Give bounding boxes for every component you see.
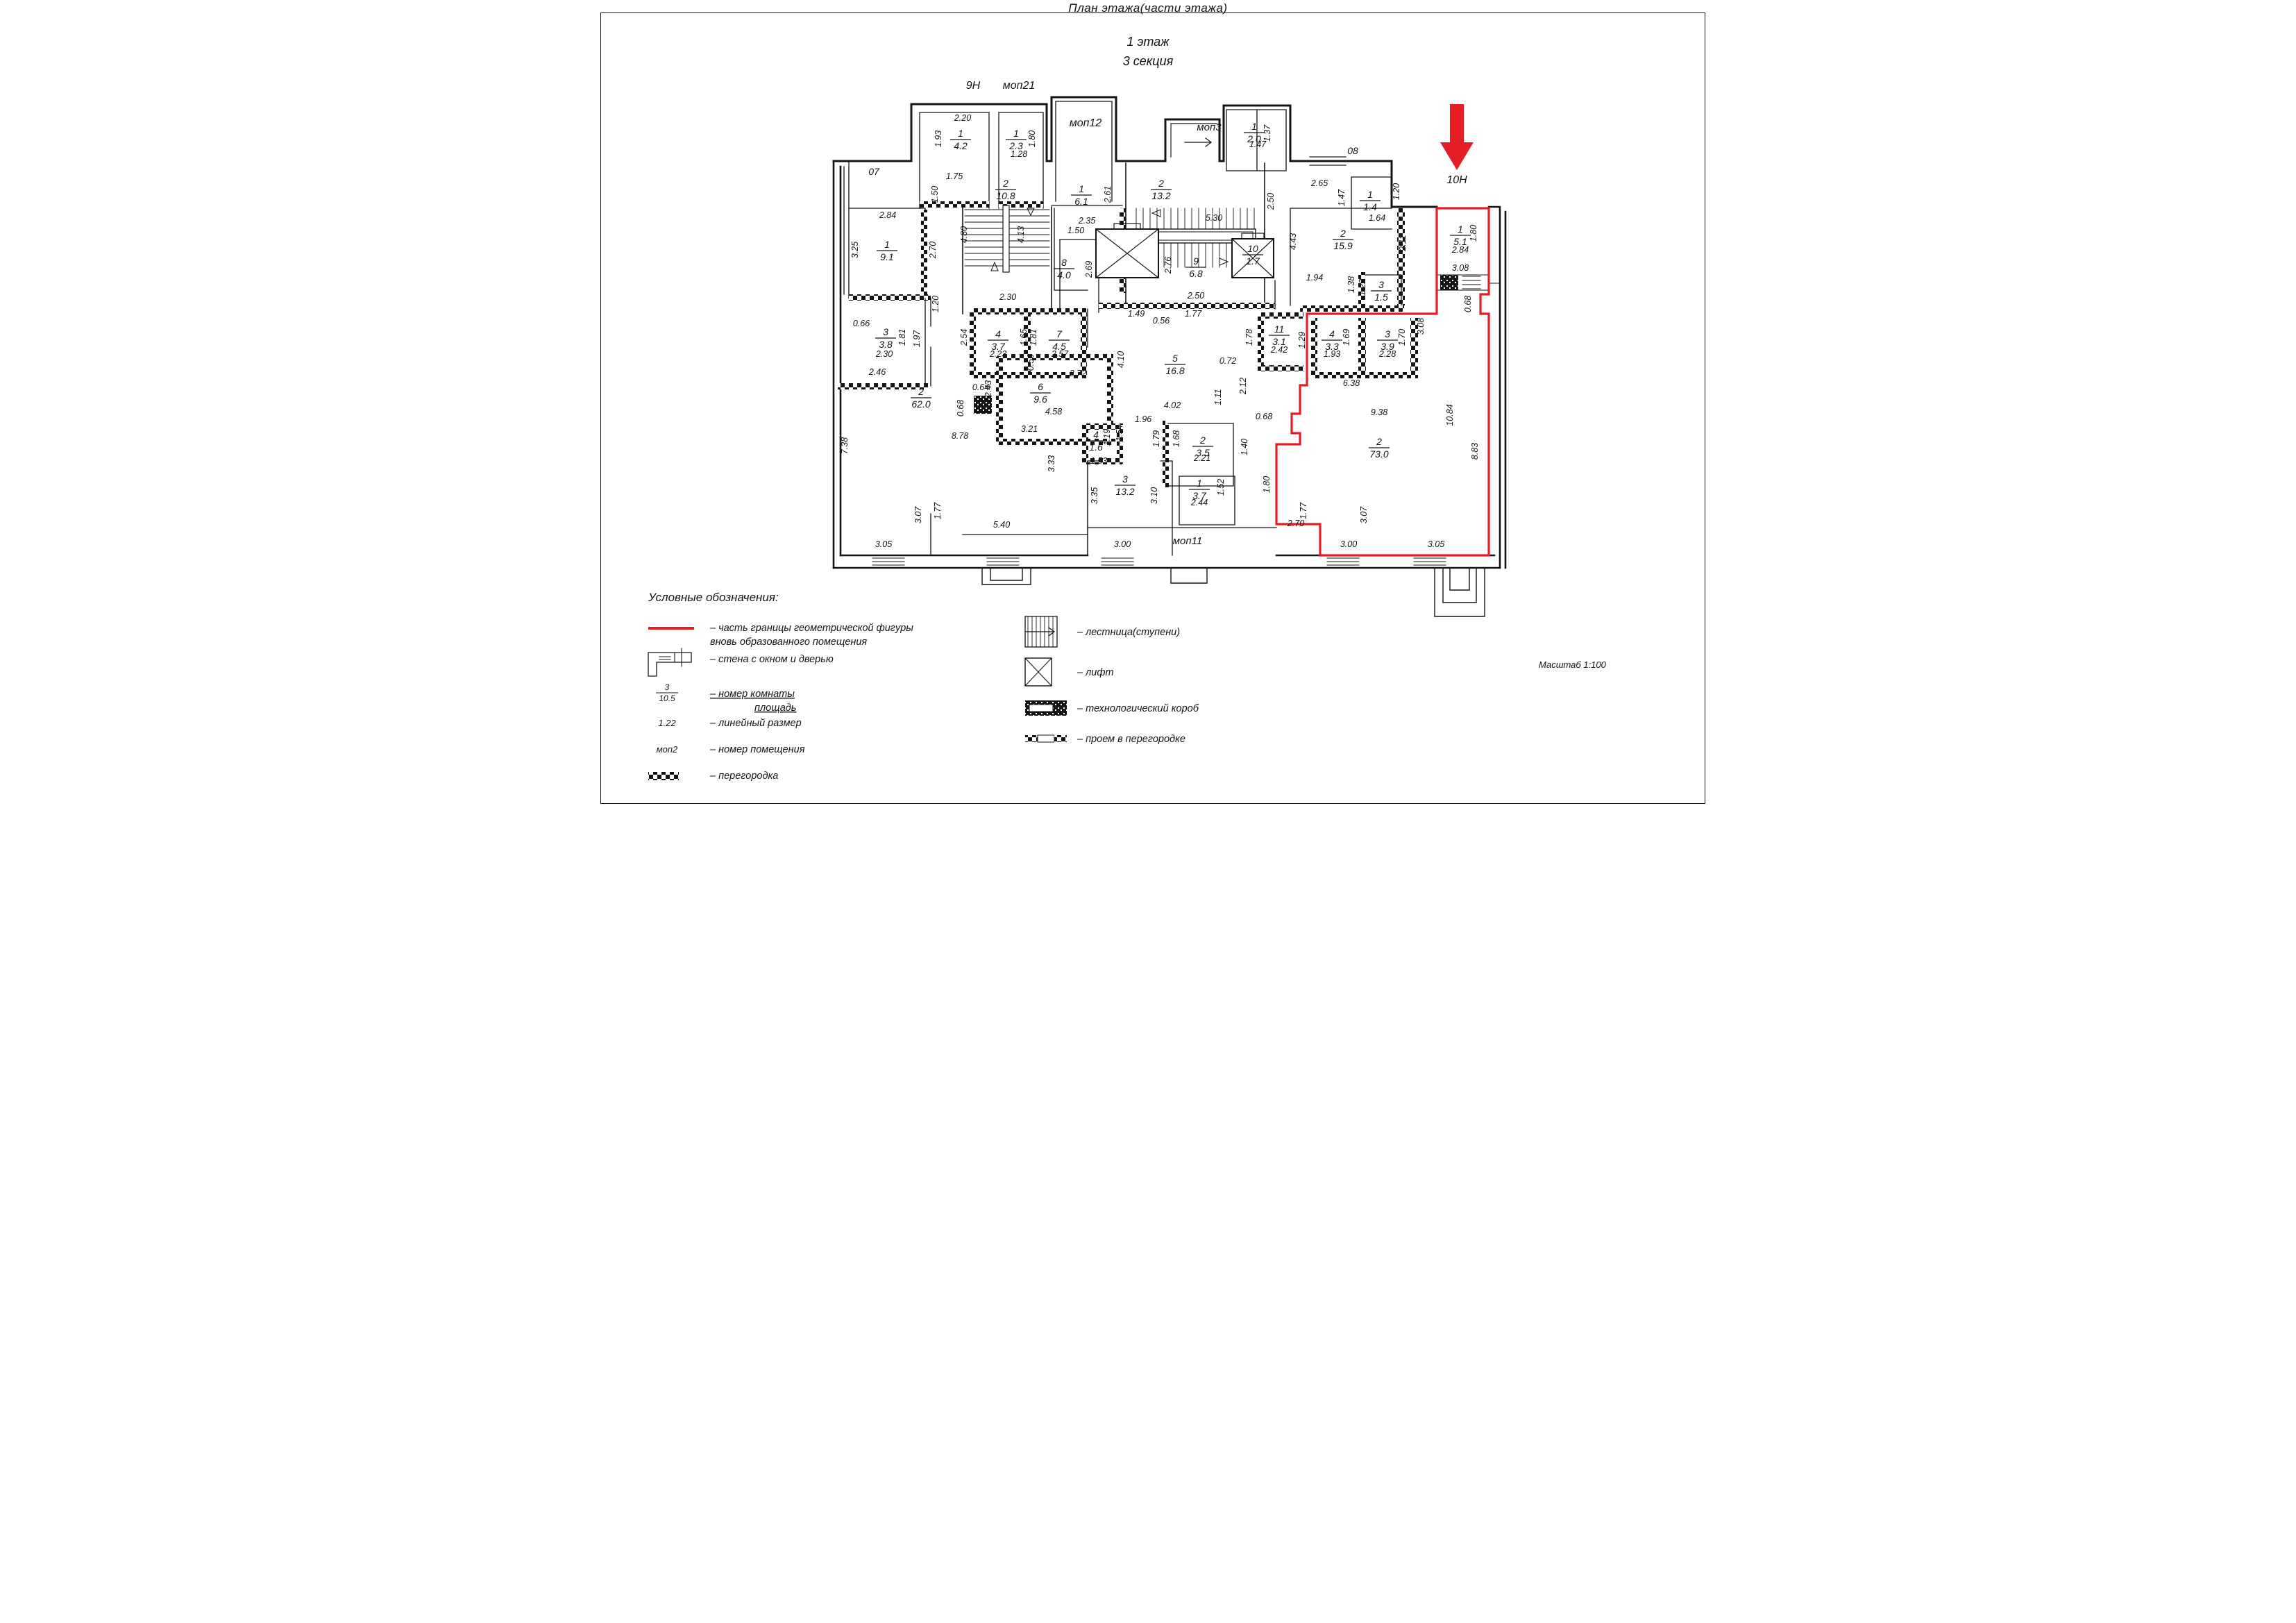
svg-text:3: 3 [1122, 473, 1128, 485]
svg-text:2.3: 2.3 [1008, 140, 1023, 151]
legend-text: – перегородка [709, 771, 778, 782]
room-label: 43.7 [988, 328, 1008, 352]
svg-text:1.5: 1.5 [1374, 292, 1388, 303]
svg-text:4.5: 4.5 [1052, 341, 1066, 352]
unit-id-label: 08 [1347, 145, 1358, 156]
dim-label: 2.12 [1238, 378, 1248, 395]
legend-symbol-checker [648, 772, 679, 780]
svg-text:16.8: 16.8 [1165, 365, 1184, 376]
svg-text:3.3: 3.3 [1325, 341, 1339, 352]
dim-label: 1.50 [1067, 226, 1084, 235]
unit-id-label: 10Н [1446, 174, 1467, 186]
svg-text:4.2: 4.2 [954, 140, 968, 151]
svg-text:4: 4 [1093, 429, 1099, 440]
svg-text:2: 2 [1002, 178, 1008, 189]
legend-text: – технологический короб [1077, 703, 1199, 714]
dim-label: 3.25 [850, 242, 860, 258]
dim-label: 4.02 [1164, 401, 1181, 410]
dim-label: 4.58 [1045, 407, 1062, 417]
legend: Условные обозначения:– часть границы гео… [648, 591, 1199, 782]
room-label: 43.3 [1322, 328, 1342, 352]
dim-label: 1.54 [1115, 425, 1124, 442]
unit-id-label: моп21 [1003, 80, 1035, 92]
dim-label: 1.97 [912, 330, 922, 347]
dim-label: 3.05 [1428, 539, 1444, 549]
legend-text: – номер помещения [709, 744, 805, 755]
svg-text:2: 2 [1199, 435, 1206, 446]
room-label: 516.8 [1165, 353, 1185, 376]
dim-label: 2.43 [984, 380, 993, 398]
legend-text: – часть границы геометрической фигуры [709, 623, 913, 634]
dim-label: 1.65 [1019, 329, 1029, 346]
svg-text:13.2: 13.2 [1151, 190, 1170, 201]
unit-id-label: моп3 [1197, 121, 1222, 133]
dim-label: 1.96 [1135, 414, 1151, 424]
dim-label: 2.46 [868, 367, 886, 377]
dim-label: 3.00 [1114, 539, 1131, 549]
dim-label: 3.07 [1359, 506, 1369, 523]
dim-label: 2.50 [1187, 291, 1204, 301]
dim-label: 4.43 [1288, 233, 1298, 250]
dim-label: 2.20 [954, 113, 971, 123]
dim-label: 0.72 [1219, 356, 1236, 366]
plan-drawing [834, 97, 1505, 616]
svg-text:9.6: 9.6 [1033, 394, 1047, 405]
room-label: 31.5 [1371, 279, 1392, 303]
dim-label: 1.68 [1172, 430, 1181, 447]
dim-label: 2.35 [1078, 216, 1095, 226]
svg-text:4.0: 4.0 [1057, 269, 1071, 280]
room-label: 84.0 [1054, 257, 1074, 280]
dim-label: 0.56 [1153, 316, 1170, 326]
svg-text:10.8: 10.8 [996, 190, 1015, 201]
dim-label: 6.38 [1343, 378, 1360, 388]
dim-label: 1.80 [1027, 131, 1037, 147]
dim-label: 2.61 [1103, 186, 1113, 203]
room-label: 14.2 [950, 128, 971, 151]
legend-symbol-lift [1025, 658, 1052, 686]
dim-label: 1.81 [1029, 329, 1038, 346]
svg-text:1: 1 [1079, 183, 1084, 194]
legend-text: – лестница(ступени) [1077, 627, 1180, 638]
svg-text:3.8: 3.8 [879, 339, 893, 350]
legend-text: вновь образованного помещения [710, 637, 867, 648]
svg-text:3.7: 3.7 [1192, 490, 1207, 501]
room-label: 69.6 [1030, 381, 1051, 405]
svg-text:3.5: 3.5 [1196, 447, 1210, 458]
svg-text:11: 11 [1274, 323, 1285, 335]
unit-id-label: 9Н [966, 80, 981, 92]
dim-label: 1.53 [1090, 456, 1107, 466]
dim-label: 2.30 [999, 292, 1016, 302]
dim-label: 2.50 [1266, 193, 1276, 210]
dim-label: 1.64 [1369, 213, 1385, 223]
dim-label: 1.11 [1213, 389, 1223, 405]
legend-text: площадь [754, 703, 796, 714]
legend-symbol-duct [1025, 700, 1067, 716]
dim-label: 1.80 [1262, 476, 1272, 493]
room-label: 11.4 [1360, 189, 1381, 212]
dim-label: 1.77 [1185, 309, 1202, 319]
unit-id-label: моп11 [1173, 535, 1202, 547]
unit-id-label: 07 [868, 166, 880, 177]
svg-text:6.8: 6.8 [1189, 268, 1203, 279]
dim-label: 3.35 [1090, 487, 1099, 504]
dim-label: 1.19 [1102, 429, 1112, 446]
dim-label: 2.11 [1398, 235, 1408, 251]
dim-label: 1.69 [1342, 329, 1351, 346]
room-label: 19.1 [877, 239, 897, 262]
scale-note: Масштаб 1:100 [1539, 659, 1606, 670]
svg-text:1: 1 [1197, 478, 1202, 489]
dim-label: 8.78 [952, 431, 968, 441]
dim-label: 3.05 [875, 539, 892, 549]
svg-text:10: 10 [1247, 243, 1258, 254]
legend-text: – стена с окном и дверью [709, 654, 834, 665]
dim-label: 2.65 [1310, 178, 1328, 188]
legend-symbol-wall [648, 648, 691, 676]
room-label: 113.1 [1269, 323, 1290, 347]
room-label: 16.1 [1071, 183, 1092, 207]
dim-label: 10.84 [1445, 404, 1455, 426]
dim-label: 3.00 [1340, 539, 1357, 549]
dim-label: 0.68 [956, 400, 965, 417]
svg-text:1.4: 1.4 [1363, 201, 1377, 212]
legend-symbol-stairs [1025, 616, 1057, 647]
floor-plan-canvas: 9Нмоп21моп12моп3070810Нмоп112.201.931.80… [574, 0, 1722, 811]
svg-text:3.7: 3.7 [991, 341, 1006, 352]
dim-label: 7.38 [840, 437, 850, 454]
room-label: 273.0 [1369, 436, 1390, 460]
svg-text:1.7: 1.7 [1246, 255, 1260, 267]
svg-text:4: 4 [1329, 328, 1335, 339]
svg-text:5: 5 [1172, 353, 1178, 364]
svg-text:73.0: 73.0 [1369, 448, 1388, 460]
dim-label: 0.68 [1463, 296, 1473, 312]
dim-label: 1.81 [897, 329, 907, 346]
dim-label: 2.54 [959, 329, 969, 346]
svg-text:3: 3 [1378, 279, 1384, 290]
dim-label: 0.66 [853, 319, 870, 328]
dim-label: 1.79 [1151, 430, 1161, 447]
svg-text:1: 1 [1458, 224, 1463, 235]
room-label: 215.9 [1333, 228, 1353, 251]
dim-label: 3.08 [1452, 263, 1469, 273]
dim-label: 1.52 [1216, 479, 1226, 496]
dim-label: 1.29 [1297, 332, 1307, 348]
svg-text:1: 1 [1013, 128, 1019, 139]
svg-text:8: 8 [1061, 257, 1067, 268]
dim-label: 3.33 [1047, 455, 1056, 472]
legend-text: – линейный размер [709, 718, 802, 729]
dim-label: 2.30 [875, 349, 893, 359]
svg-text:9.1: 9.1 [880, 251, 893, 262]
dim-label: 1.94 [1306, 273, 1323, 283]
legend-title: Условные обозначения: [648, 591, 779, 604]
unit-id-label: моп12 [1070, 117, 1102, 129]
dim-label: 1.77 [1299, 502, 1308, 519]
dim-label: 1.80 [1469, 225, 1478, 242]
dim-label: 1.70 [1397, 329, 1407, 346]
svg-text:6.1: 6.1 [1074, 196, 1088, 207]
dim-label: 1.40 [1240, 439, 1249, 455]
legend-symbol-gap [1025, 735, 1067, 742]
drawing-sheet: План этажа(части этажа) 1 этаж 3 секция … [574, 0, 1722, 811]
dim-label: 4.10 [1116, 351, 1126, 368]
svg-text:1.6: 1.6 [1089, 442, 1103, 453]
svg-text:3: 3 [1385, 328, 1390, 339]
svg-text:10.5: 10.5 [659, 693, 675, 703]
room-label: 313.2 [1115, 473, 1136, 497]
svg-text:1: 1 [884, 239, 890, 250]
dim-label: 2.70 [928, 242, 938, 259]
dim-label: 5.30 [1206, 213, 1222, 223]
dim-label: 9.38 [1371, 407, 1387, 417]
room-label: 213.2 [1151, 178, 1172, 201]
dim-label: 4.13 [1016, 226, 1026, 243]
svg-text:15.9: 15.9 [1333, 240, 1352, 251]
room-label: 96.8 [1185, 255, 1206, 279]
room-label: 262.0 [911, 386, 931, 410]
dim-label: 2.72 [1069, 369, 1086, 378]
svg-text:моп2: моп2 [657, 744, 678, 755]
dim-label: 4.80 [959, 226, 969, 243]
dim-label: 5.40 [993, 520, 1010, 530]
room-label: 15.1 [1450, 224, 1471, 247]
svg-text:2: 2 [1340, 228, 1346, 239]
dim-label: 2.69 [1084, 261, 1094, 278]
dim-label: 0.56 [1026, 354, 1036, 371]
svg-text:9: 9 [1193, 255, 1199, 267]
dim-label: 1.50 [930, 186, 940, 203]
dim-label: 2.76 [1163, 257, 1173, 274]
legend-text: – лифт [1077, 667, 1114, 678]
svg-text:62.0: 62.0 [911, 398, 930, 410]
dim-label: 1.38 [1347, 276, 1356, 293]
svg-text:2: 2 [918, 386, 924, 397]
dim-label: 3.07 [913, 506, 923, 523]
svg-text:7: 7 [1056, 328, 1063, 339]
svg-text:3: 3 [883, 326, 888, 337]
dim-label: 1.77 [933, 502, 943, 519]
dim-label: 3.21 [1021, 424, 1038, 434]
svg-text:13.2: 13.2 [1115, 486, 1134, 497]
dim-label: 1.47 [1337, 189, 1347, 206]
room-label: 12.3 [1006, 128, 1027, 151]
dim-label: 0.68 [1256, 412, 1272, 421]
room-label: 74.5 [1049, 328, 1070, 352]
svg-text:3.1: 3.1 [1272, 336, 1285, 347]
svg-text:6: 6 [1038, 381, 1043, 392]
dim-label: 3.10 [1149, 487, 1159, 504]
svg-text:1: 1 [958, 128, 963, 139]
dim-label: 1.49 [1128, 309, 1145, 319]
dim-label: 1.20 [931, 296, 940, 312]
legend-text: – проем в перегородке [1077, 734, 1185, 745]
dim-label: 1.20 [1392, 183, 1401, 200]
svg-text:3: 3 [665, 682, 670, 692]
dim-label: 1.75 [946, 171, 963, 181]
svg-text:4: 4 [995, 328, 1001, 339]
svg-text:1: 1 [1367, 189, 1373, 200]
svg-text:2: 2 [1376, 436, 1382, 447]
dim-label: 1.93 [934, 131, 943, 147]
room-label: 33.8 [875, 326, 896, 350]
dim-label: 8.83 [1470, 443, 1480, 460]
svg-text:1: 1 [1251, 121, 1257, 132]
svg-text:5.1: 5.1 [1453, 236, 1467, 247]
dim-label: 1.78 [1244, 329, 1254, 346]
svg-text:3.9: 3.9 [1381, 341, 1394, 352]
dim-label: 3.08 [1416, 318, 1426, 335]
dim-label: 1.22 [1358, 279, 1367, 296]
svg-text:1.22: 1.22 [658, 718, 676, 728]
dim-label: 2.84 [879, 210, 896, 220]
legend-text: – номер комнаты [709, 689, 795, 700]
svg-text:2: 2 [1158, 178, 1164, 189]
svg-text:2.0: 2.0 [1247, 133, 1261, 144]
room-label: 33.9 [1377, 328, 1398, 352]
